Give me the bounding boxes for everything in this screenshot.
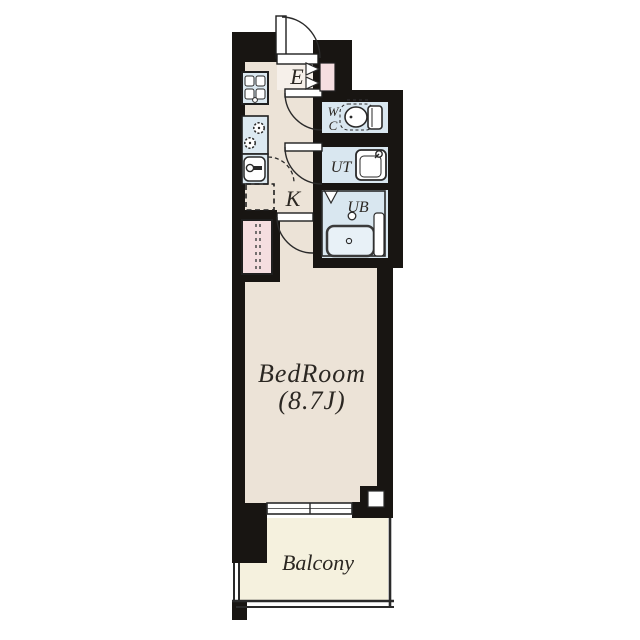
bedroom-door-leaf xyxy=(277,213,313,221)
floor-plan: E K W C UT UB BedRoom (8.7J) Balcony xyxy=(0,0,640,640)
wc-door-leaf xyxy=(285,89,322,97)
wc-label-c: C xyxy=(329,118,338,133)
shoe-cabinet xyxy=(320,63,335,91)
balcony-corner-post xyxy=(232,601,247,620)
wall xyxy=(232,32,277,62)
ut-fixtures xyxy=(356,150,386,180)
wall xyxy=(232,210,277,220)
wc-label-w: W xyxy=(328,104,340,119)
wall xyxy=(232,274,280,282)
wall xyxy=(232,503,267,563)
closet xyxy=(242,220,272,274)
kitchen-label: K xyxy=(285,186,302,211)
wall xyxy=(322,133,388,147)
utility-label: UT xyxy=(331,159,353,176)
entrance-step xyxy=(277,54,318,64)
bedroom-size-label: (8.7J) xyxy=(278,386,345,415)
wall xyxy=(388,90,403,268)
ut-door-leaf xyxy=(285,143,322,151)
unit-bath-label: UB xyxy=(347,199,369,216)
bedroom-label: BedRoom xyxy=(258,359,366,388)
entrance-door-leaf xyxy=(276,16,286,58)
toilet-tank xyxy=(368,106,382,129)
pillar-icon xyxy=(368,491,384,507)
balcony-rail-left xyxy=(234,563,239,602)
wall xyxy=(377,262,393,518)
wall xyxy=(273,214,280,282)
entrance-label: E xyxy=(289,64,304,89)
closet-box xyxy=(242,220,272,274)
floor-plan-canvas: E K W C UT UB BedRoom (8.7J) Balcony xyxy=(0,0,640,640)
wall xyxy=(313,183,388,190)
bathtub-icon xyxy=(327,226,374,256)
burner-flame-icon xyxy=(242,116,268,154)
bath-counter xyxy=(374,213,384,256)
toilet-icon xyxy=(345,107,367,127)
balcony-label: Balcony xyxy=(282,550,354,575)
